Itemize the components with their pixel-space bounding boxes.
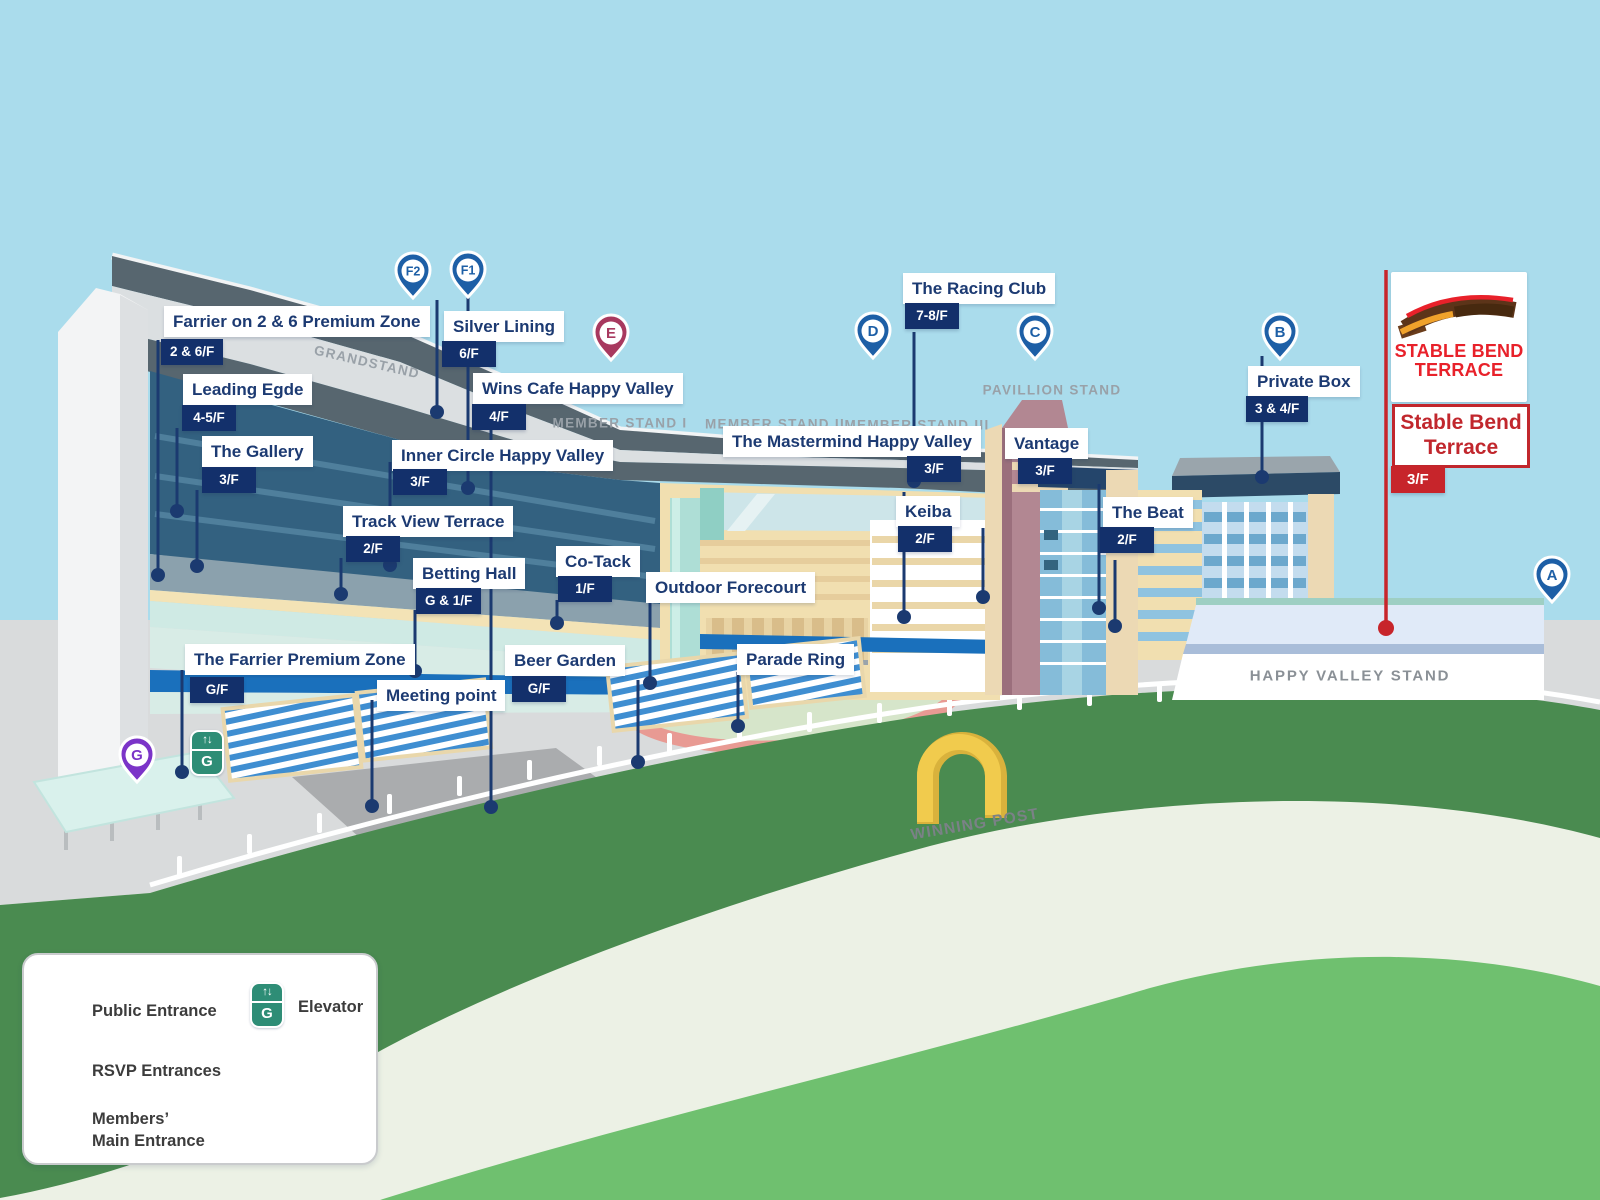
svg-text:F2: F2 bbox=[406, 265, 421, 279]
stand-name-member1: MEMBER STAND I bbox=[553, 416, 688, 431]
venue-label-mastermind: The Mastermind Happy Valley bbox=[723, 426, 981, 457]
venue-label-wins-cafe: Wins Cafe Happy Valley bbox=[473, 373, 683, 404]
floor-badge-leading-egde: 4-5/F bbox=[182, 405, 236, 431]
elevator-letter: G bbox=[192, 751, 222, 774]
stand-name-happy-valley: HAPPY VALLEY STAND bbox=[1250, 668, 1450, 685]
venue-label-farrier-premium: The Farrier Premium Zone bbox=[185, 644, 415, 675]
svg-text:B: B bbox=[1275, 324, 1286, 341]
venue-label-co-tack: Co-Tack bbox=[556, 546, 640, 577]
venue-label-outdoor-forecourt: Outdoor Forecourt bbox=[646, 572, 815, 603]
floor-badge-stable-bend: 3/F bbox=[1391, 466, 1445, 493]
venue-label-private-box: Private Box bbox=[1248, 366, 1360, 397]
venue-label-betting-hall: Betting Hall bbox=[413, 558, 525, 589]
venue-label-inner-circle: Inner Circle Happy Valley bbox=[392, 440, 613, 471]
elevator-icon[interactable]: ↑↓ G bbox=[190, 730, 224, 776]
callout-line2: Terrace bbox=[1397, 435, 1525, 460]
svg-text:C: C bbox=[1030, 324, 1041, 341]
floor-badge-farrier-premium: G/F bbox=[190, 677, 244, 703]
floor-badge-wins-cafe: 4/F bbox=[472, 404, 526, 430]
floor-badge-private-box: 3 & 4/F bbox=[1246, 396, 1308, 422]
floor-badge-inner-circle: 3/F bbox=[393, 469, 447, 495]
venue-label-racing-club: The Racing Club bbox=[903, 273, 1055, 304]
floor-badge-beer-garden: G/F bbox=[512, 676, 566, 702]
venue-label-leading-egde: Leading Egde bbox=[183, 374, 312, 405]
svg-text:G: G bbox=[131, 747, 143, 764]
venue-label-track-view: Track View Terrace bbox=[343, 506, 513, 537]
svg-text:A: A bbox=[1547, 567, 1558, 584]
floor-badge-silver-lining: 6/F bbox=[442, 341, 496, 367]
floor-badge-the-beat: 2/F bbox=[1100, 527, 1154, 553]
logo-text-line2: TERRACE bbox=[1391, 361, 1527, 380]
floor-badge-betting-hall: G & 1/F bbox=[416, 588, 481, 614]
svg-text:F1: F1 bbox=[461, 264, 476, 278]
legend-label-elevator: Elevator bbox=[298, 998, 363, 1018]
svg-text:D: D bbox=[868, 323, 879, 340]
elevator-arrows-icon: ↑↓ bbox=[192, 732, 222, 751]
floor-badge-track-view: 2/F bbox=[346, 536, 400, 562]
legend-elevator-arrows-icon: ↑↓ bbox=[252, 984, 282, 1003]
floor-badge-mastermind: 3/F bbox=[907, 456, 961, 482]
svg-text:E: E bbox=[606, 325, 616, 342]
venue-label-parade-ring: Parade Ring bbox=[737, 644, 854, 675]
floor-badge-keiba: 2/F bbox=[898, 526, 952, 552]
floor-badge-vantage: 3/F bbox=[1018, 458, 1072, 484]
legend-label-public-entrance: Public Entrance bbox=[92, 1002, 217, 1022]
venue-label-vantage: Vantage bbox=[1005, 428, 1088, 459]
racecourse-map: F2 F1 E D C B A G G bbox=[0, 0, 1600, 1200]
stable-bend-callout: Stable Bend Terrace bbox=[1392, 404, 1530, 468]
floor-badge-co-tack: 1/F bbox=[558, 576, 612, 602]
left-tower bbox=[58, 288, 148, 790]
floor-badge-gallery: 3/F bbox=[202, 467, 256, 493]
floor-badge-farrier-zone: 2 & 6/F bbox=[161, 339, 223, 365]
venue-label-gallery: The Gallery bbox=[202, 436, 313, 467]
venue-label-the-beat: The Beat bbox=[1103, 497, 1193, 528]
venue-label-beer-garden: Beer Garden bbox=[505, 645, 625, 676]
legend-label-members-line1: Members’ bbox=[92, 1110, 169, 1130]
logo-text-line1: STABLE BEND bbox=[1391, 342, 1527, 361]
legend-label-rsvp-entrances: RSVP Entrances bbox=[92, 1062, 221, 1082]
venue-label-farrier-zone: Farrier on 2 & 6 Premium Zone bbox=[164, 306, 430, 337]
stable-bend-arc-icon bbox=[1391, 278, 1527, 342]
callout-line1: Stable Bend bbox=[1397, 410, 1525, 435]
legend-elevator-icon: ↑↓ G bbox=[250, 982, 284, 1028]
legend-label-members-line2: Main Entrance bbox=[92, 1132, 205, 1152]
stable-bend-logo: STABLE BEND TERRACE bbox=[1391, 272, 1527, 402]
legend-elevator-letter: G bbox=[252, 1003, 282, 1026]
happy-valley-stand-building bbox=[1172, 598, 1544, 700]
venue-label-silver-lining: Silver Lining bbox=[444, 311, 564, 342]
venue-label-keiba: Keiba bbox=[896, 496, 960, 527]
venue-label-meeting-point: Meeting point bbox=[377, 680, 505, 711]
floor-badge-racing-club: 7-8/F bbox=[905, 303, 959, 329]
stand-name-pavillion: PAVILLION STAND bbox=[983, 383, 1122, 398]
